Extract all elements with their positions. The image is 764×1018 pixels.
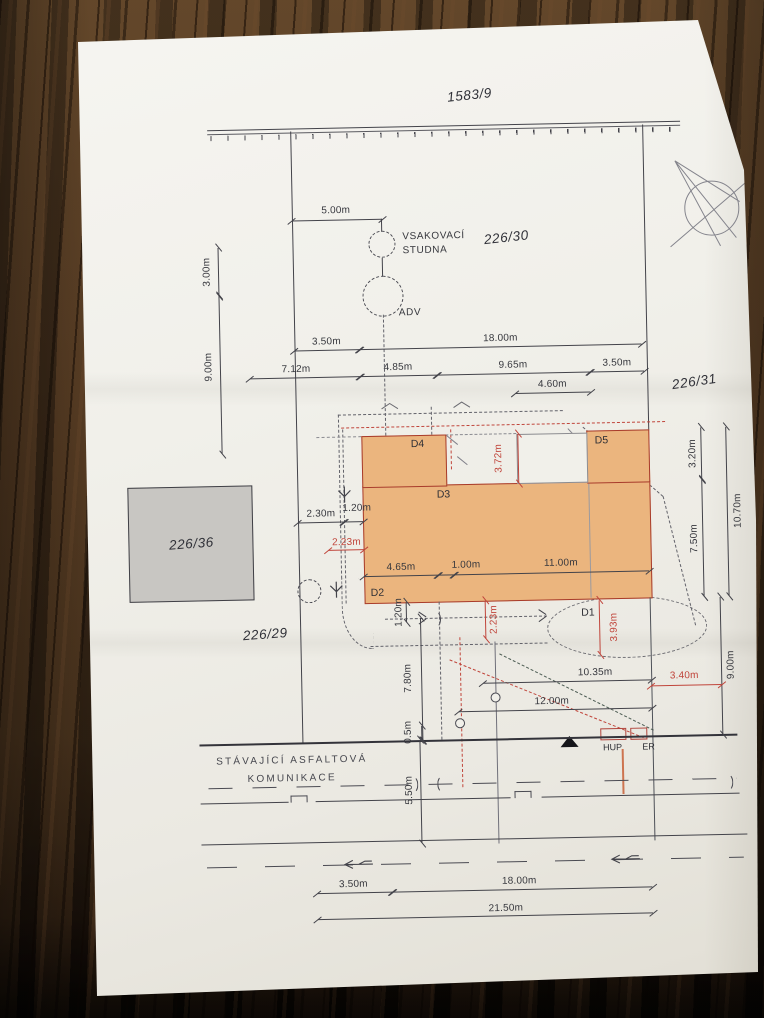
dimension-label: 18.00m — [502, 875, 537, 887]
dimension-label: 1.20m — [342, 502, 371, 514]
dimension-label: 9.00m — [725, 650, 737, 679]
road-marking-dashed — [207, 857, 744, 869]
drain-arrowhead — [539, 616, 547, 622]
dimension-label: 11.00m — [544, 557, 578, 569]
well-label: STUDNA — [402, 244, 447, 256]
service-line — [494, 642, 499, 844]
shaft-circle — [490, 692, 500, 702]
dimension-label: 0.5m — [403, 721, 414, 744]
soak-well-circle — [368, 230, 396, 258]
door-swing-mark — [446, 435, 458, 445]
direction-arrow — [604, 853, 642, 866]
marker-label: D1 — [581, 607, 595, 619]
parcel-label: 226/30 — [483, 227, 529, 247]
dimension-line — [295, 349, 360, 351]
marker-label: D3 — [437, 488, 451, 500]
proposed-edge-red-dashed — [341, 421, 665, 429]
dimension-label: 18.00m — [483, 333, 518, 345]
gable-mark — [389, 403, 398, 409]
dimension-line — [421, 726, 422, 740]
flow-arrow-symbol — [337, 485, 351, 503]
culvert-symbol — [437, 775, 448, 792]
dimension-line — [318, 912, 653, 920]
dimension-line — [515, 392, 590, 395]
site-plan-paper: VSAKOVACÍ STUDNA ADV — [0, 0, 764, 1018]
road-label: STÁVAJÍCÍ ASFALTOVÁ — [216, 754, 367, 768]
parcel-boundary-line — [642, 124, 649, 430]
dimension-line — [392, 886, 652, 892]
dimension-label: 5.50m — [404, 776, 416, 805]
dimension-line-red — [329, 549, 364, 551]
dimension-label: 2.30m — [306, 508, 335, 520]
er-label: ER — [642, 741, 655, 751]
marker-label: D4 — [411, 438, 425, 450]
dimension-label: 9.65m — [498, 359, 527, 371]
parcel-label: 226/31 — [671, 371, 718, 392]
dimension-line — [298, 522, 344, 524]
site-plan-drawing: VSAKOVACÍ STUDNA ADV — [0, 0, 764, 1018]
direction-arrow — [337, 858, 375, 871]
dimension-line — [725, 427, 729, 596]
dimension-label: 12.00m — [534, 696, 569, 708]
building-wing-d4 — [361, 434, 447, 488]
well-connector-line — [382, 258, 384, 277]
dimension-line — [250, 376, 360, 379]
drainage-axis-line — [342, 430, 346, 604]
dimension-line — [483, 679, 651, 683]
road-edge-line — [201, 833, 747, 845]
well-label: VSAKOVACÍ — [402, 230, 465, 242]
dimension-label-red: 3.40m — [670, 670, 699, 682]
dimension-line — [700, 427, 702, 479]
culvert-symbol — [722, 774, 733, 791]
dimension-line — [406, 602, 407, 622]
adv-label: ADV — [399, 307, 422, 318]
dimension-label: 1.20m — [393, 598, 405, 627]
dimension-line — [317, 892, 392, 895]
drain-arrowhead — [538, 609, 546, 615]
hup-label: HUP — [603, 742, 622, 752]
dimension-line — [590, 370, 644, 372]
guardrail-line — [201, 802, 289, 805]
shaft-circle — [455, 718, 465, 728]
dimension-label-red: 2.23m — [332, 537, 361, 549]
dimension-line — [218, 296, 222, 454]
dimension-label: 7.80m — [402, 664, 414, 693]
dimension-label-red: 2.23m — [488, 605, 500, 634]
dimension-label: 7.12m — [281, 364, 310, 376]
dimension-label: 3.00m — [201, 258, 213, 287]
photo-of-site-plan: VSAKOVACÍ STUDNA ADV — [0, 0, 764, 1018]
dimension-line — [419, 740, 422, 843]
dimension-line — [437, 372, 590, 376]
dimension-label: 1.00m — [451, 559, 480, 571]
dimension-label: 5.00m — [321, 205, 350, 217]
guardrail-line — [542, 793, 740, 798]
dimension-line — [360, 375, 437, 378]
road-edge-line — [199, 734, 737, 746]
parcel-label: 1583/9 — [446, 85, 492, 105]
parcel-label: 226/29 — [242, 625, 288, 643]
dimension-label-red: 3.72m — [493, 444, 505, 473]
dimension-line — [701, 479, 704, 596]
building-footprint-main — [362, 480, 652, 604]
roof-outline-arc — [547, 594, 708, 659]
dimension-line — [720, 597, 724, 734]
flow-arrow-symbol — [329, 581, 343, 599]
dimension-label: 4.65m — [386, 562, 415, 574]
gas-service-line — [622, 749, 624, 794]
aux-dashed-line — [445, 433, 516, 435]
dimension-line — [344, 521, 363, 522]
adv-circle — [362, 275, 404, 317]
dimension-label: 9.00m — [203, 353, 215, 382]
dimension-label: 3.50m — [312, 336, 341, 348]
dimension-label: 4.85m — [383, 362, 412, 374]
service-diagonal — [499, 653, 654, 730]
guardrail-symbol — [514, 791, 531, 798]
dimension-label: 10.35m — [578, 667, 613, 679]
dimension-line — [218, 248, 220, 296]
dimension-label: 3.50m — [602, 357, 631, 369]
road-label: KOMUNIKACE — [247, 772, 336, 785]
dimension-label-red: 3.93m — [608, 613, 620, 642]
drain-line — [385, 615, 547, 619]
guardrail-symbol — [291, 795, 308, 802]
door-swing-mark — [457, 456, 468, 465]
dimension-line — [459, 707, 652, 712]
dimension-line — [360, 344, 642, 351]
dimension-label: 4.60m — [538, 379, 567, 391]
marker-label: D5 — [595, 434, 609, 446]
dimension-line-red — [485, 601, 487, 639]
dimension-label: 21.50m — [488, 903, 523, 915]
parcel-boundary-line — [290, 132, 303, 744]
dimension-label: 3.50m — [339, 879, 368, 891]
dimension-label: 3.20m — [687, 439, 699, 468]
marker-label: D2 — [371, 587, 385, 599]
dimension-line — [292, 219, 382, 222]
terrace-recess — [516, 433, 588, 484]
dimension-label: 7.50m — [689, 524, 701, 553]
dimension-label: 10.70m — [732, 493, 744, 528]
er-box — [630, 727, 647, 739]
hup-box — [600, 728, 626, 741]
roof-outline — [338, 410, 563, 416]
dimension-line-red — [651, 684, 721, 686]
manhole-circle — [297, 579, 321, 603]
gable-mark — [461, 401, 470, 407]
